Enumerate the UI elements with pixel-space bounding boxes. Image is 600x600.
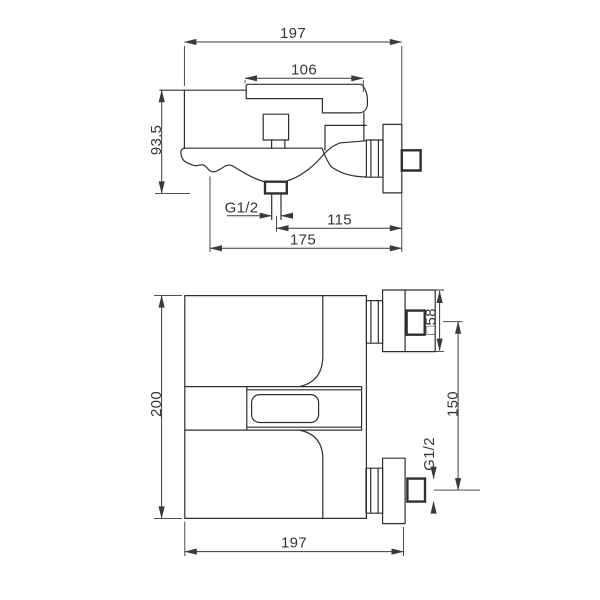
body-rear-face (325, 113, 366, 150)
dim-height: 93.5 (148, 90, 190, 193)
body-outline-plan (185, 296, 367, 519)
spout-outlet-pipe (272, 193, 281, 219)
dim-handle-length: 106 (245, 62, 363, 93)
faucet-technical-drawing: 197 106 93.5 G1/2 115 (0, 0, 600, 600)
dim-overall-height-label: 200 (148, 391, 165, 417)
dim-base-depth-label: 175 (290, 231, 316, 248)
dim-port-spacing: 150 (434, 322, 480, 490)
body-fillet-top (300, 296, 323, 387)
lever-recess (252, 395, 319, 423)
side-view: 197 106 93.5 G1/2 115 (148, 25, 421, 252)
dim-port-spacing-label: 150 (444, 391, 461, 417)
inlet-thread-label: G1/2 (421, 437, 438, 471)
handle-lever (246, 84, 367, 113)
dim-overall-depth-label: 197 (280, 25, 306, 42)
dim-escutcheon: □58 (423, 290, 444, 352)
dim-overall-width-label: 197 (281, 535, 307, 552)
plan-view: 200 □58 150 G1/2 197 (148, 290, 480, 556)
technical-drawing-page: 197 106 93.5 G1/2 115 (0, 0, 600, 600)
dim-outlet-to-wall: 115 (277, 211, 402, 232)
body-fillet-bottom (300, 430, 323, 518)
diverter-knob (263, 114, 288, 148)
dim-inlet-thread: G1/2 (421, 437, 438, 511)
dim-handle-length-label: 106 (291, 62, 317, 79)
outlet-thread-label: G1/2 (225, 200, 259, 217)
spout-outlet-flange (265, 182, 287, 194)
wall-plate-side (383, 124, 402, 192)
dim-height-label: 93.5 (148, 125, 165, 155)
body-rear-curves (287, 141, 367, 181)
spout-underside (181, 148, 265, 182)
dim-outlet-to-wall-label: 115 (327, 211, 352, 228)
wall-pipe-side (402, 150, 421, 170)
dim-escutcheon-label: □58 (423, 308, 440, 335)
hex-nut-bottom-port (366, 468, 383, 513)
wall-pipe-bottom-port (407, 479, 425, 502)
wall-plate-bottom-port (383, 458, 406, 523)
dim-overall-height: 200 (148, 296, 182, 519)
dim-overall-depth: 197 (184, 25, 401, 252)
dim-overall-width: 197 (185, 522, 404, 557)
hex-nut-top-port (366, 301, 382, 344)
hex-nut-side (366, 140, 383, 177)
handle-band-plan (185, 387, 362, 431)
